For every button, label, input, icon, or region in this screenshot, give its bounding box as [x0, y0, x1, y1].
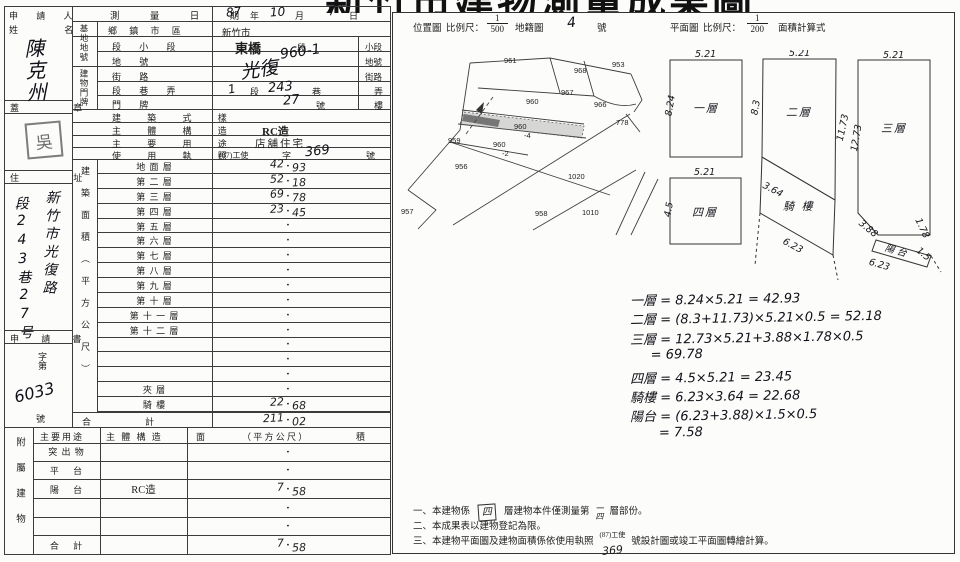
floor-label: 第 十 二 層	[97, 324, 212, 337]
attached-row-value: ·	[187, 464, 390, 476]
floor-value: ·	[212, 338, 390, 352]
attached-buildings-table: 突 出 物 · 平 台 · 陽 台 RC造 7	[33, 443, 390, 555]
floor-value: ·	[212, 233, 390, 247]
attached-row-structure: RC造	[100, 482, 187, 497]
floor-value: ·	[212, 308, 390, 322]
site-subsection-unit: 小段	[365, 41, 382, 53]
door-segment-number-handwritten: 1	[227, 81, 237, 96]
attached-value-decimal	[292, 524, 390, 529]
floor-value-decimal	[292, 238, 390, 243]
floor-value: ·	[212, 352, 390, 366]
survey-date-day-unit: 日	[349, 9, 358, 22]
floor-value-integer	[212, 283, 284, 287]
decimal-point: ·	[284, 464, 292, 476]
floor-value-decimal: 45	[292, 202, 391, 220]
decimal-point: ·	[284, 249, 292, 261]
floor-label: 第 十 層	[97, 294, 212, 307]
scale2-fraction: 1 200	[747, 13, 768, 34]
door-floor-unit: 樓	[374, 99, 383, 112]
floor-area-row: 地 面 層 42 · 93	[97, 159, 390, 174]
decimal-point: ·	[284, 324, 292, 336]
door-number-handwritten: 27	[282, 92, 300, 108]
note-3: 三、 本建物平面圖及建物面積係依使用執照 (87)工使 369 號設計圖或竣工平…	[413, 535, 774, 550]
floor-label: 第 十 一 層	[97, 309, 212, 322]
site-district-value: 新竹市	[222, 25, 251, 39]
attached-value-decimal: 58	[292, 536, 391, 554]
attached-value-decimal	[292, 449, 390, 454]
grid-line	[358, 36, 359, 109]
attached-row: 平 台 ·	[33, 462, 390, 481]
floor-label: 第 六 層	[97, 234, 212, 247]
floor-label: 第 五 層	[97, 220, 212, 233]
note1-post: 層部份。	[610, 505, 648, 520]
site-district-label: 鄉 鎮 市 區	[108, 24, 186, 37]
decimal-point: ·	[284, 502, 292, 514]
decimal-point: ·	[284, 353, 292, 365]
license-number-handwritten: 369	[304, 143, 330, 161]
scale1-label: 比例尺：	[446, 20, 484, 34]
parcel-number: 959	[448, 136, 461, 145]
decimal-point: ·	[284, 446, 292, 458]
site-parcel-unit: 地號	[365, 56, 382, 68]
address-handwritten-col1: 新竹市光復路	[38, 190, 62, 299]
floor-value-decimal	[292, 223, 390, 228]
area-calc-label: 面積計算式	[778, 20, 826, 34]
attached-row: 突 出 物 ·	[33, 443, 390, 462]
floor-plan-label: 平面圖	[670, 20, 699, 34]
decimal-point: ·	[284, 368, 292, 380]
parcel-number: 953	[612, 60, 625, 69]
survey-date-day-value: 7	[327, 4, 337, 19]
note1-pre: 本建物係	[432, 505, 470, 520]
floor-value: ·	[212, 278, 390, 292]
balcony-name: 陽 台	[884, 242, 909, 260]
cadastral-map-number-handwritten: 4	[566, 15, 577, 32]
area-total-decimal: 02	[292, 410, 391, 428]
floor-value-integer	[212, 387, 284, 391]
floor-value-integer	[212, 268, 284, 272]
door-number-label: 門 牌	[112, 98, 156, 111]
floor-area-row: 第 八 層 ·	[97, 263, 390, 278]
decimal-point: ·	[284, 294, 292, 306]
floor-value: ·	[212, 382, 390, 396]
attached-header-area-left: 面	[196, 430, 205, 443]
scale2-numerator: 1	[747, 13, 768, 24]
attached-row-value: 7 · 58	[187, 539, 390, 552]
attached-value-integer: 7	[187, 480, 285, 498]
floor-area-table: 地 面 層 42 · 93 第 二 層 52 · 18 第 三 層 69 ·	[97, 159, 390, 412]
floor-area-row: 第 十 一 層 ·	[97, 308, 390, 323]
floor-area-row: ·	[97, 338, 390, 353]
arcade-bottom-dim: 6.23	[781, 236, 805, 256]
attached-row-label: 突 出 物	[33, 445, 100, 458]
note1-range-handwritten: 一 四	[596, 505, 604, 521]
floor3-top-dim: 5.21	[883, 50, 904, 61]
door-number-unit: 號	[316, 99, 325, 112]
floor-label: 第 七 層	[97, 249, 212, 262]
floor-label: 地 面 層	[97, 160, 212, 173]
floor2-right-dim: 11.73	[835, 113, 851, 142]
floor-label: 第 四 層	[97, 205, 212, 218]
application-number-unit: 號	[36, 412, 45, 425]
floor4-left-dim: 4.5	[663, 201, 676, 218]
attached-value-integer	[187, 524, 284, 529]
floor-value-integer	[212, 298, 284, 302]
attached-row-value: 7 · 58	[187, 483, 390, 496]
door-group-label: 建物門牌	[78, 69, 90, 107]
parcel-number: 967	[561, 88, 574, 97]
arcade-side-dim: 3.64	[761, 180, 785, 200]
attached-header-structure: 主 體 構 造	[106, 430, 163, 443]
attached-row-value: ·	[187, 520, 390, 532]
seal-stamp-character: 吳	[34, 127, 53, 153]
area-total-label-1: 合	[82, 415, 91, 428]
cadastral-map-drawing	[398, 52, 660, 237]
floor-value-decimal	[292, 342, 390, 347]
area-group-label: 建築面積（平方公尺）	[79, 166, 92, 411]
decimal-point: ·	[284, 520, 292, 532]
floor-value: ·	[212, 219, 390, 233]
floor-value-integer	[212, 357, 284, 361]
area-total-integer: 211	[212, 411, 285, 428]
floor-value-decimal	[292, 357, 390, 362]
floor-value: 22 · 68	[212, 397, 390, 411]
structure-label: 主 體 構 造	[112, 124, 239, 137]
attached-header-use: 主要用途	[40, 430, 84, 443]
calculation-line: = 7.58	[630, 422, 882, 446]
floor2-name: 二層	[786, 106, 812, 119]
floor3-cut-dim: 3.88	[856, 218, 879, 240]
attached-value-decimal: 58	[292, 480, 391, 498]
parcel-number: 958	[535, 209, 548, 218]
note1-number: 一、	[413, 505, 432, 520]
decimal-point: ·	[284, 219, 292, 231]
address-handwritten-col2: 段243巷27号	[10, 196, 35, 343]
scale2-label: 比例尺：	[703, 20, 741, 34]
floor-area-row: 第 五 層 ·	[97, 219, 390, 234]
note3-license-number-handwritten: 369	[601, 542, 623, 559]
attached-value-decimal	[292, 505, 390, 510]
floor-area-row: 騎 樓 22 · 68	[97, 397, 390, 412]
floor-value-integer: 23	[212, 202, 285, 219]
parcel-number: 968	[574, 66, 587, 75]
parcel-number: 1020	[568, 172, 585, 181]
floor-area-row: 第 九 層 ·	[97, 278, 390, 293]
area-calculations: 一層 = 8.24×5.21 = 42.93二層 = (8.3+11.73)×5…	[630, 288, 882, 443]
floor4-name: 四層	[692, 206, 718, 219]
parcel-number: 960	[493, 140, 506, 149]
survey-date-year-unit: 年	[250, 9, 259, 22]
survey-date-month-value: 10	[270, 4, 286, 19]
parcel-number: 966	[594, 100, 607, 109]
floor-label: 第 三 層	[97, 190, 212, 203]
arcade-name: 騎 樓	[783, 200, 815, 213]
floor-label: 第 八 層	[97, 264, 212, 277]
door-lane-unit: 巷	[312, 85, 321, 98]
decimal-point: ·	[284, 279, 292, 291]
decimal-point: ·	[284, 264, 292, 276]
attached-value-decimal	[292, 468, 390, 473]
floor-label: 騎 樓	[97, 398, 212, 411]
scale1-fraction: 1 500	[487, 13, 508, 34]
survey-date-month-unit: 月	[295, 9, 304, 22]
floor-label: 第 九 層	[97, 279, 212, 292]
door-lane-label: 段 巷 弄	[112, 84, 184, 97]
cadastral-map-number-unit: 號	[597, 20, 607, 34]
floor-area-row: 第 十 層 ·	[97, 293, 390, 308]
floor-plan-drawings: 5.21 8.24 一層 5.21 8.3 11.73 二層 騎 樓 3.64 …	[663, 50, 960, 300]
parcel-number: 956	[455, 162, 468, 171]
note3-post: 號設計圖或竣工平面圖轉繪計算。	[631, 535, 774, 550]
door-alley-unit: 弄	[374, 85, 383, 98]
grid-line	[97, 21, 98, 109]
attached-row-label: 平 台	[33, 464, 100, 477]
attached-row: ·	[33, 518, 390, 537]
door-segment-unit: 段	[250, 85, 259, 98]
floor-value-integer: 69	[212, 187, 285, 204]
floor-value: 23 · 45	[212, 204, 390, 218]
floor-value-integer	[212, 343, 284, 347]
note3-pre: 本建物平面圖及建物面積係依使用執照	[432, 535, 594, 550]
floor-label: 夾 層	[97, 383, 212, 396]
floor-value-integer	[212, 372, 284, 376]
location-map: 961968953967960966960-4959960-2778956102…	[398, 52, 660, 237]
note3-number: 三、	[413, 535, 432, 550]
note3-license-prefix: (87)工使	[600, 528, 626, 543]
attached-value-integer	[187, 468, 284, 473]
location-map-label: 位置圖	[413, 20, 442, 34]
note3-license-ref: (87)工使 369	[600, 528, 626, 558]
site-parcel-label: 地 號	[112, 55, 156, 68]
grid-line	[4, 6, 5, 555]
attached-header-area-right: 積	[356, 430, 365, 443]
floor-value-decimal	[292, 372, 390, 377]
decimal-point: ·	[284, 383, 292, 395]
decimal-point: ·	[284, 309, 292, 321]
scale1-numerator: 1	[487, 13, 508, 24]
survey-date-year-value: 87	[225, 4, 242, 20]
floor-value: ·	[212, 367, 390, 381]
use-value: 店舖住宅	[255, 136, 305, 151]
parcel-number: 778	[616, 118, 629, 127]
floor1-left-dim: 8.24	[663, 94, 678, 117]
parcel-number: -2	[502, 149, 509, 158]
floor-value: ·	[212, 263, 390, 277]
floor3-edge-dim: 1.78	[912, 216, 931, 240]
attached-header-area-mid: （ 平 方 公 尺 ）	[242, 430, 307, 443]
attached-value-integer	[187, 449, 284, 454]
scale2-denominator: 200	[751, 24, 765, 34]
floor-value-integer: 22	[212, 396, 285, 413]
floor-value-integer	[212, 253, 284, 257]
attached-group-label: 附屬建物	[12, 437, 26, 549]
floor-area-row: ·	[97, 352, 390, 367]
floor-area-row: 第 三 層 69 · 78	[97, 189, 390, 204]
floor2-top-dim: 5.21	[789, 50, 810, 59]
floor-area-row: 第 六 層 ·	[97, 233, 390, 248]
floor-value: ·	[212, 293, 390, 307]
attached-value-integer	[187, 505, 284, 510]
attached-row-label: 陽 台	[33, 483, 100, 496]
address-label: 住 址	[10, 171, 108, 184]
parcel-number: 957	[401, 207, 414, 216]
floor3-name: 三層	[881, 122, 907, 135]
floor-value-decimal	[292, 297, 390, 302]
parcel-number: 1010	[582, 208, 599, 217]
parcel-number: 961	[504, 56, 517, 65]
floor-value-integer	[212, 313, 284, 317]
attached-row-value: ·	[187, 502, 390, 514]
door-street-unit: 街路	[365, 71, 382, 83]
footer-notes: 一、 本建物係 四 層建物本件僅測量第 一 四 層部份。 二、本成果表以建物登記…	[413, 505, 774, 550]
floor-area-row: 第 十 二 層 ·	[97, 323, 390, 338]
attached-row-value: ·	[187, 446, 390, 458]
note1-mid: 層建物本件僅測量第	[504, 505, 590, 520]
door-street-label: 街 路	[112, 70, 156, 83]
scanned-survey-document: 新竹市建物測量成果圖 申 請 人 姓	[0, 0, 960, 562]
application-zidai-label: 字第	[36, 352, 49, 370]
floor-value-integer	[212, 224, 284, 228]
floor-label: 第 二 層	[97, 175, 212, 188]
floor1-top-dim: 5.21	[695, 50, 716, 60]
seal-stamp: 吳	[24, 120, 63, 159]
decimal-point: ·	[284, 234, 292, 246]
floor-value-integer	[212, 238, 284, 242]
style-label: 建 築 式 樣	[112, 111, 239, 124]
note1-floors-handwritten: 四	[477, 503, 496, 521]
floor-value: 52 · 18	[212, 174, 390, 188]
floor-area-row: ·	[97, 367, 390, 382]
site-section-label: 段 小 段	[112, 40, 184, 53]
parcel-number: 960	[526, 97, 539, 106]
floor3-outline	[858, 60, 930, 235]
floor2-left-dim: 8.3	[749, 99, 762, 116]
floor-value-decimal	[292, 253, 390, 258]
balcony-bottom-dim: 6.23	[868, 257, 891, 273]
parcel-number: -4	[524, 131, 531, 140]
attached-row: 合 計 7 · 58	[33, 536, 390, 555]
floor-area-row: 夾 層 ·	[97, 382, 390, 397]
area-total-value: 211 · 02	[212, 412, 390, 427]
grid-line	[72, 6, 73, 427]
floor-area-row: 第 四 層 23 · 45	[97, 204, 390, 219]
floor-area-row: 第 二 層 52 · 18	[97, 174, 390, 189]
floor-area-row: 第 七 層 ·	[97, 248, 390, 263]
applicant-label-line1: 申 請 人	[9, 9, 81, 22]
floor-value-decimal	[292, 386, 390, 391]
floor-value: ·	[212, 323, 390, 337]
attached-row-label: 合 計	[33, 539, 100, 552]
floor-value-decimal	[292, 312, 390, 317]
parcel-number: 960	[514, 122, 527, 131]
area-total-label-2: 計	[145, 415, 154, 428]
floor-value: 69 · 78	[212, 189, 390, 203]
floor-value: 42 · 93	[212, 159, 390, 173]
floor-value-decimal	[292, 282, 390, 287]
note-1: 一、 本建物係 四 層建物本件僅測量第 一 四 層部份。	[413, 505, 774, 520]
application-number-handwritten: 6033	[12, 378, 56, 406]
note-2: 二、本成果表以建物登記為限。	[413, 520, 774, 535]
floor1-name: 一層	[693, 102, 719, 115]
floor-value-decimal	[292, 267, 390, 272]
cadastral-map-label: 地籍圖	[515, 20, 544, 34]
note2-text: 二、本成果表以建物登記為限。	[413, 520, 546, 535]
decimal-point: ·	[284, 338, 292, 350]
floor-value-decimal	[292, 327, 390, 332]
grid-line	[390, 6, 391, 555]
scale1-denominator: 500	[491, 24, 505, 34]
attached-row: ·	[33, 499, 390, 518]
seal-label: 蓋 章	[10, 101, 108, 114]
attached-value-integer: 7	[187, 536, 285, 554]
floor3-left-dim: 12.73	[849, 124, 865, 153]
site-parcel-number-handwritten: 960-1	[279, 41, 322, 63]
floor-value: ·	[212, 248, 390, 262]
grid-line	[4, 427, 390, 428]
site-group-label: 基地地號	[78, 24, 90, 64]
floor4-top-dim: 5.21	[694, 167, 715, 178]
attached-row: 陽 台 RC造 7 · 58	[33, 480, 390, 499]
applicant-name-handwritten: 陳克州	[18, 37, 50, 104]
floor-value-integer	[212, 328, 284, 332]
